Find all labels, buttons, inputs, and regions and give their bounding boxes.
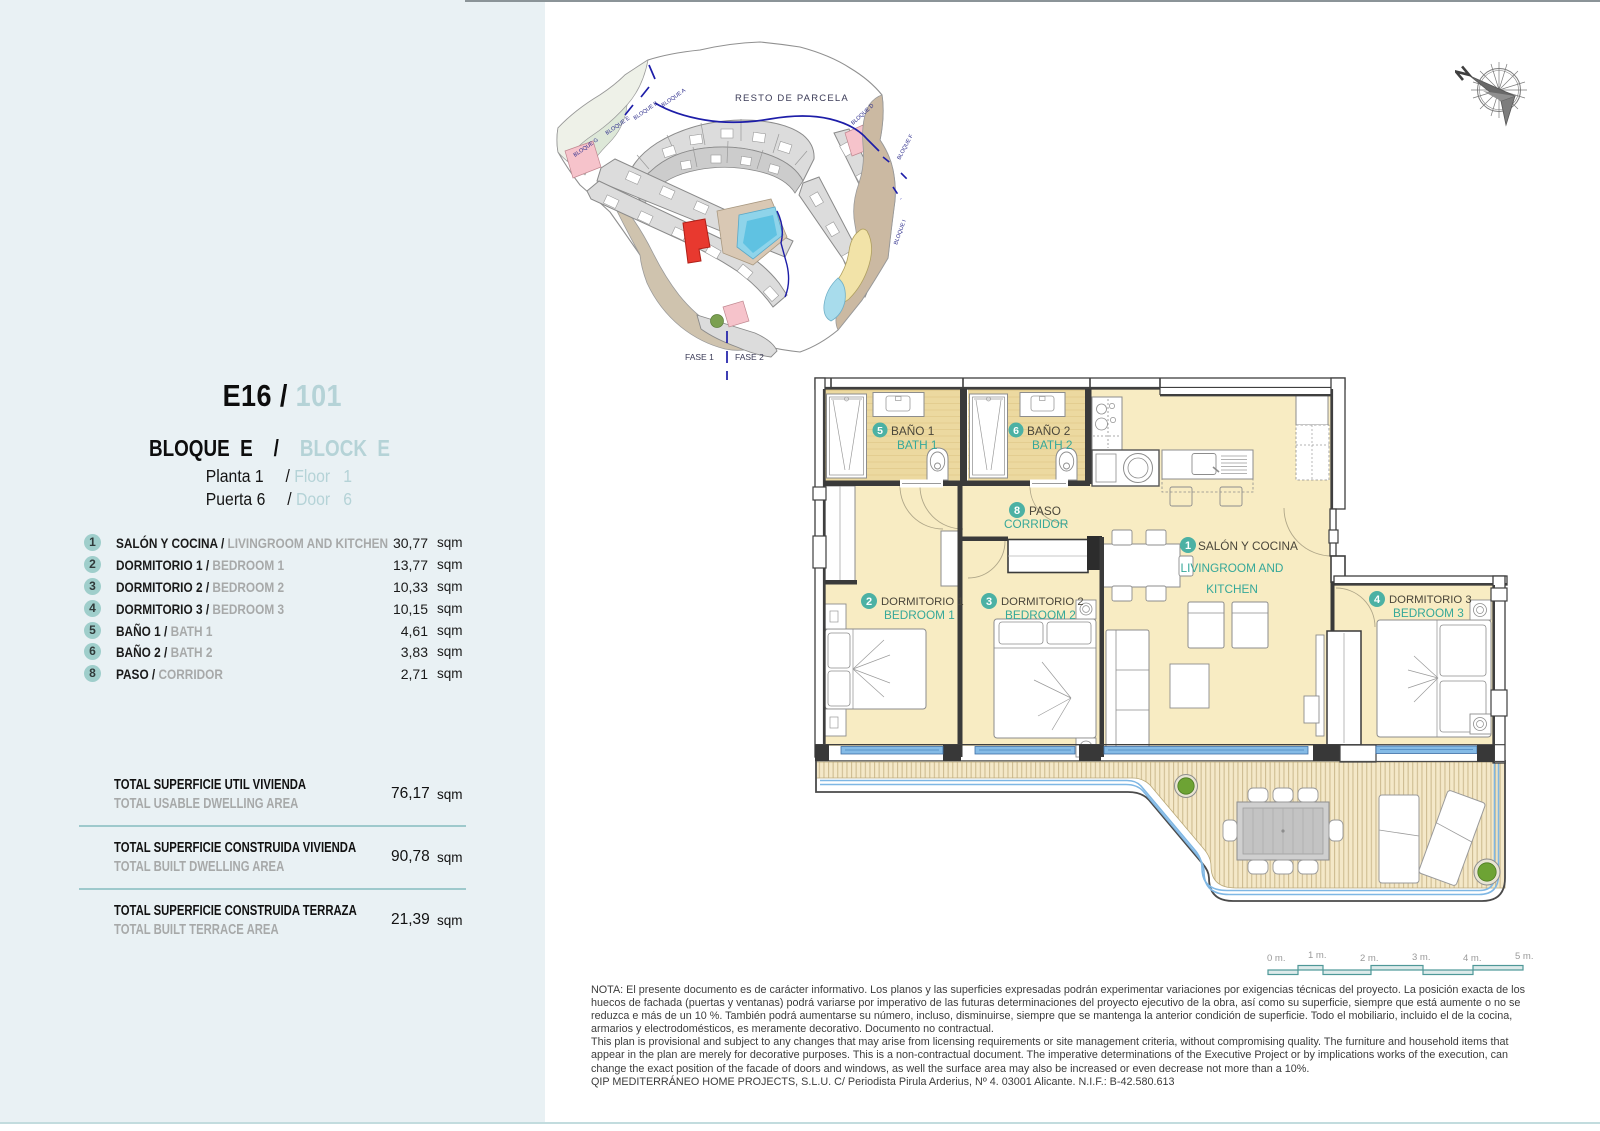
svg-text:PASO: PASO — [1029, 504, 1061, 518]
svg-text:2: 2 — [866, 596, 872, 608]
svg-text:SALÓN Y COCINA: SALÓN Y COCINA — [1198, 539, 1298, 553]
svg-text:5: 5 — [877, 425, 883, 437]
svg-text:BLOQUE F: BLOQUE F — [896, 133, 915, 161]
svg-text:DORMITORIO 3: DORMITORIO 3 — [1389, 594, 1472, 606]
svg-text:0 m.: 0 m. — [1267, 953, 1285, 964]
svg-text:BAÑO 2: BAÑO 2 — [1027, 424, 1070, 438]
svg-text:BAÑO 1: BAÑO 1 — [891, 424, 934, 438]
svg-text:8: 8 — [1014, 505, 1020, 517]
svg-text:BLOQUE I: BLOQUE I — [893, 219, 908, 246]
svg-text:DORMITORIO 1: DORMITORIO 1 — [881, 596, 964, 608]
svg-text:BATH 1: BATH 1 — [897, 438, 937, 452]
svg-text:FASE 2: FASE 2 — [735, 352, 764, 362]
svg-text:FASE 1: FASE 1 — [685, 352, 714, 362]
svg-text:5 m.: 5 m. — [1515, 951, 1533, 962]
svg-text:LIVINGROOM AND: LIVINGROOM AND — [1181, 561, 1284, 575]
svg-text:6: 6 — [1013, 425, 1019, 437]
svg-text:BEDROOM 1: BEDROOM 1 — [884, 608, 955, 622]
svg-text:3 m.: 3 m. — [1412, 952, 1430, 963]
svg-text:3: 3 — [986, 596, 992, 608]
svg-text:DORMITORIO 2: DORMITORIO 2 — [1001, 596, 1084, 608]
svg-text:4 m.: 4 m. — [1463, 953, 1481, 964]
svg-text:BATH 2: BATH 2 — [1032, 438, 1072, 452]
svg-text:2 m.: 2 m. — [1360, 953, 1378, 964]
svg-text:BEDROOM 3: BEDROOM 3 — [1393, 606, 1464, 620]
svg-text:KITCHEN: KITCHEN — [1206, 582, 1258, 596]
svg-text:1 m.: 1 m. — [1308, 950, 1326, 961]
svg-text:BEDROOM 2: BEDROOM 2 — [1005, 608, 1076, 622]
svg-text:RESTO DE PARCELA: RESTO DE PARCELA — [735, 93, 849, 104]
svg-text:4: 4 — [1374, 594, 1381, 606]
svg-text:1: 1 — [1185, 540, 1191, 552]
svg-text:CORRIDOR: CORRIDOR — [1004, 517, 1068, 531]
